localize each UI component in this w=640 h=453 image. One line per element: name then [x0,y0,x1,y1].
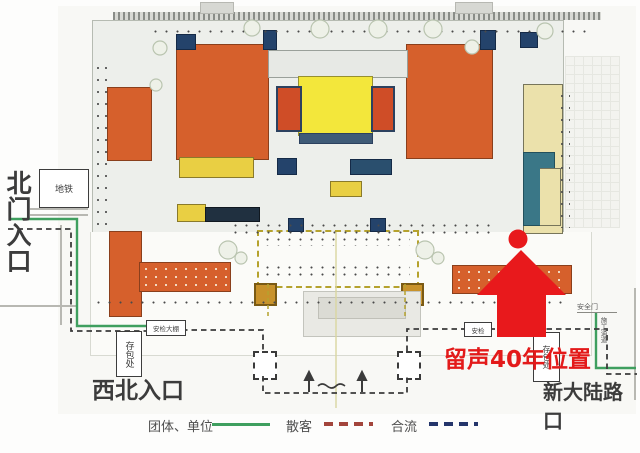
road-corner-label: 新大陆路口 [543,376,640,434]
legend-individual-label: 散客 [286,416,312,435]
northwest-entrance-label: 西北入口 [92,371,184,405]
legend: 团体、单位 散客 合流 [148,413,488,437]
legend-individual-line [324,422,373,426]
floor-plan-map: 地铁 安检大棚 存包处 安检 存包处 安全门 施工通道 北门入口 西北入口 新大… [0,0,640,453]
legend-merged-line [429,422,478,426]
legend-group-label: 团体、单位 [148,416,213,435]
north-gate-entrance-label: 北门入口 [3,170,31,296]
exhibit-location-label: 留声40年位置 [444,340,591,374]
legend-group-line [212,423,270,426]
up-arrow-icon [477,250,566,337]
marker-dot [509,230,528,249]
legend-merged-label: 合流 [391,416,417,435]
